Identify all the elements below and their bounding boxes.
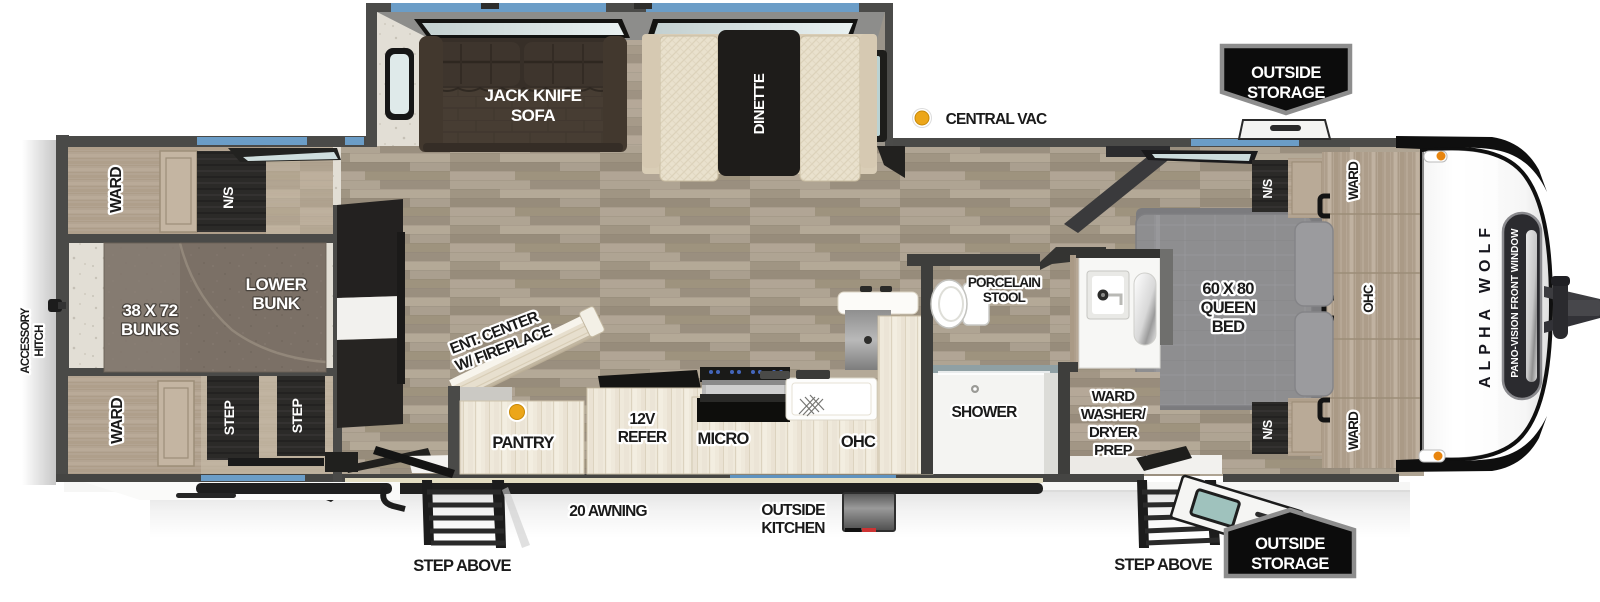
svg-text:ALPHA WOLF: ALPHA WOLF	[1477, 222, 1494, 388]
svg-text:STEP ABOVE: STEP ABOVE	[413, 557, 511, 575]
svg-text:OUTSIDE: OUTSIDE	[1255, 535, 1325, 553]
svg-text:HITCH: HITCH	[34, 325, 46, 357]
svg-text:SHOWER: SHOWER	[952, 404, 1018, 421]
svg-text:ACCESSORY: ACCESSORY	[20, 307, 32, 373]
svg-text:OHC: OHC	[841, 433, 876, 451]
svg-text:OUTSIDE: OUTSIDE	[761, 502, 825, 519]
svg-text:N/S: N/S	[1261, 420, 1275, 440]
svg-text:WARD: WARD	[108, 167, 125, 213]
svg-text:DRYER: DRYER	[1089, 424, 1138, 441]
svg-text:STEP ABOVE: STEP ABOVE	[1114, 556, 1212, 574]
svg-text:OUTSIDE: OUTSIDE	[1251, 64, 1321, 82]
svg-text:OHC: OHC	[1361, 284, 1376, 313]
svg-text:N/S: N/S	[1261, 179, 1275, 199]
svg-text:STEP: STEP	[289, 399, 305, 434]
svg-text:12V: 12V	[629, 411, 656, 428]
svg-text:WARD: WARD	[109, 398, 126, 444]
svg-text:BUNKS: BUNKS	[121, 320, 179, 339]
svg-text:N/S: N/S	[220, 187, 236, 209]
svg-text:DINETTE: DINETTE	[751, 73, 768, 134]
svg-text:PANTRY: PANTRY	[492, 434, 554, 452]
svg-text:38 X 72: 38 X 72	[122, 301, 177, 320]
svg-text:MICRO: MICRO	[698, 430, 750, 448]
svg-text:WARD: WARD	[1346, 411, 1361, 450]
svg-text:PORCELAIN: PORCELAIN	[968, 275, 1040, 290]
svg-text:BUNK: BUNK	[252, 294, 300, 313]
svg-text:QUEEN: QUEEN	[1201, 299, 1256, 317]
svg-text:SOFA: SOFA	[511, 106, 556, 125]
svg-text:BED: BED	[1212, 318, 1245, 336]
svg-text:REFER: REFER	[618, 429, 667, 446]
svg-text:PREP: PREP	[1094, 442, 1132, 459]
svg-text:STEP: STEP	[221, 401, 237, 436]
svg-text:STOOL: STOOL	[983, 290, 1026, 305]
svg-text:LOWER: LOWER	[246, 275, 307, 294]
svg-text:WARD: WARD	[1346, 161, 1361, 200]
svg-text:KITCHEN: KITCHEN	[761, 520, 825, 537]
svg-text:20 AWNING: 20 AWNING	[569, 503, 647, 520]
svg-text:STORAGE: STORAGE	[1247, 84, 1325, 102]
svg-text:STORAGE: STORAGE	[1251, 555, 1329, 573]
svg-text:WASHER/: WASHER/	[1081, 406, 1147, 423]
svg-text:PANO-VISION FRONT WINDOW: PANO-VISION FRONT WINDOW	[1510, 228, 1521, 378]
svg-text:60 X 80: 60 X 80	[1202, 280, 1254, 298]
svg-text:JACK KNIFE: JACK KNIFE	[484, 86, 581, 105]
svg-text:WARD: WARD	[1092, 388, 1136, 405]
svg-text:CENTRAL VAC: CENTRAL VAC	[946, 111, 1047, 128]
